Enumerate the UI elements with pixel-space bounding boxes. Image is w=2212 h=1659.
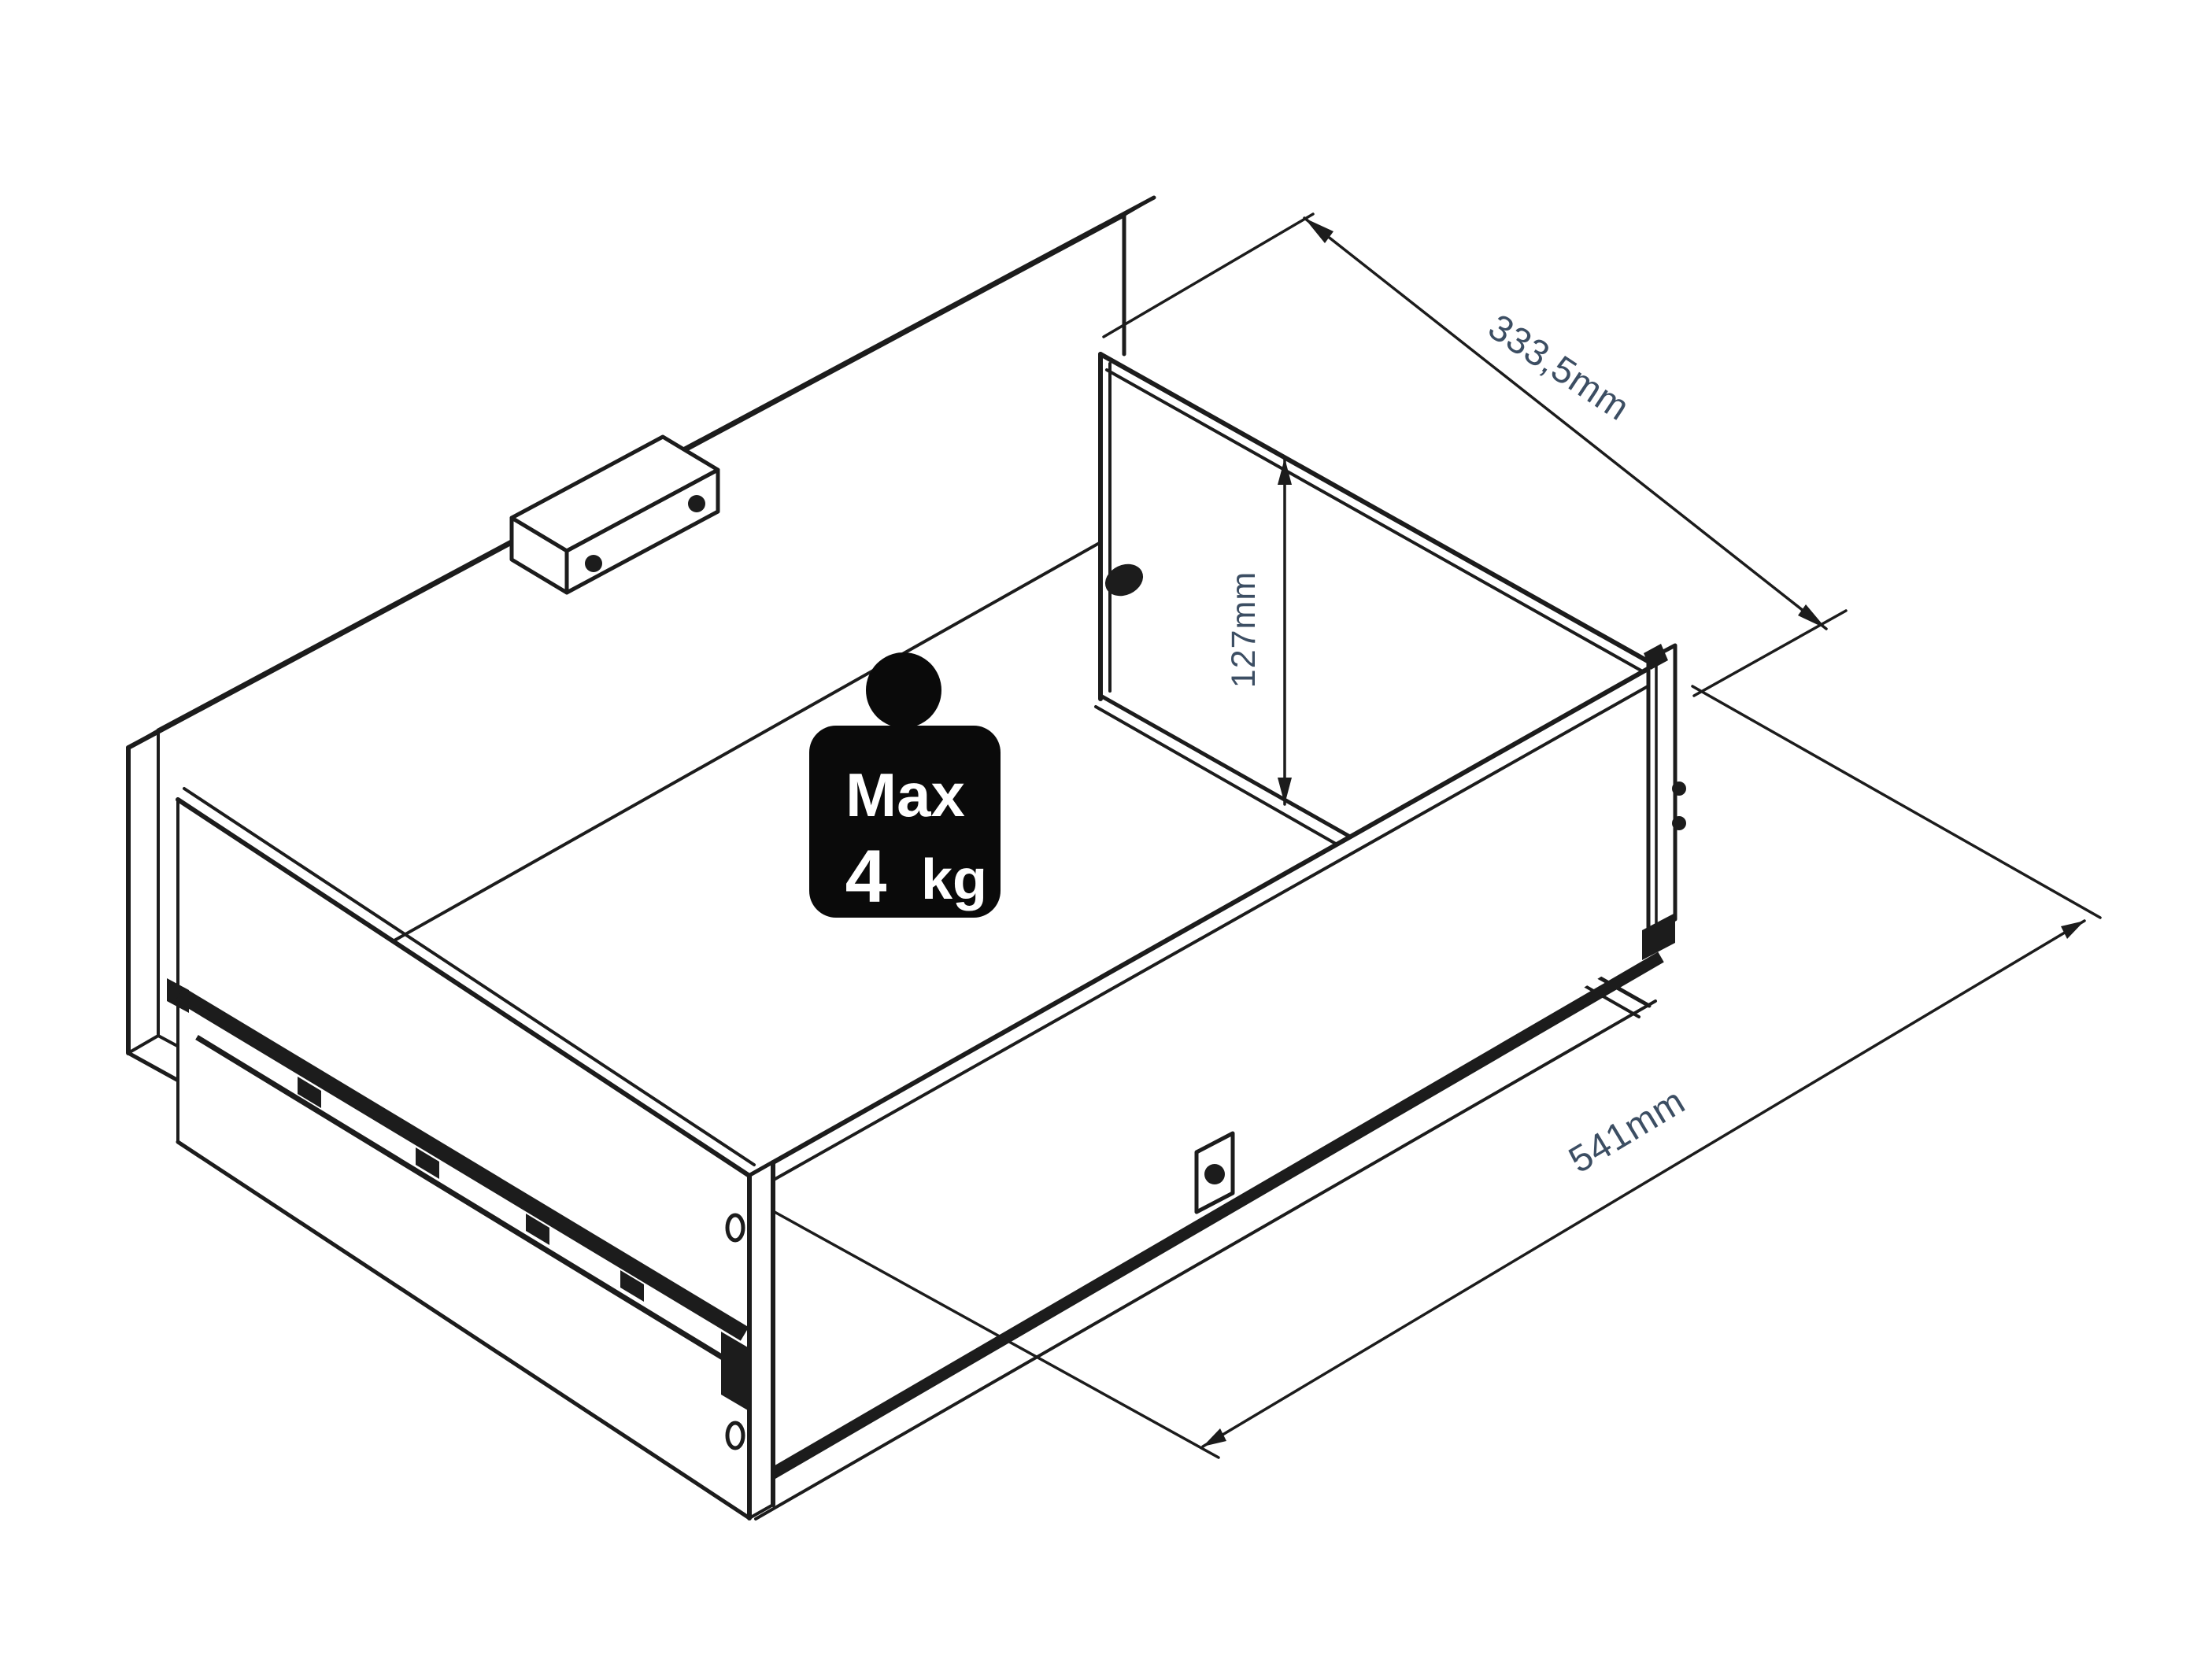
drawer-left-side-panel	[178, 789, 773, 1518]
end-cap-peg-icon	[1672, 816, 1686, 830]
weight-badge-value: 4	[845, 835, 887, 918]
rail-end-cap	[1642, 644, 1686, 960]
rail-mount-screw-icon	[1204, 1164, 1225, 1184]
drawer-isometric-diagram: 333,5mm 541mm 127mm Max 4 kg	[0, 0, 2212, 1659]
weight-badge-unit: kg	[921, 848, 987, 911]
bracket-screw-icon	[585, 555, 602, 572]
bracket-screw-icon	[688, 495, 705, 512]
arrowhead-icon	[1203, 1428, 1226, 1447]
dimension-depth-label: 333,5mm	[1481, 305, 1637, 428]
weight-badge-line1: Max	[845, 760, 965, 829]
arrowhead-icon	[1798, 604, 1826, 629]
dimension-height-label: 127mm	[1225, 571, 1263, 688]
screw-hole-icon	[727, 1423, 743, 1448]
end-cap-peg-icon	[1672, 781, 1686, 796]
arrowhead-icon	[1304, 218, 1333, 243]
arrowhead-icon	[2061, 921, 2084, 939]
drawing-canvas: 333,5mm 541mm 127mm Max 4 kg	[0, 0, 2212, 1659]
weight-knob-icon	[866, 652, 941, 728]
screw-hole-icon	[727, 1215, 743, 1240]
weight-badge: Max 4 kg	[809, 652, 1001, 918]
